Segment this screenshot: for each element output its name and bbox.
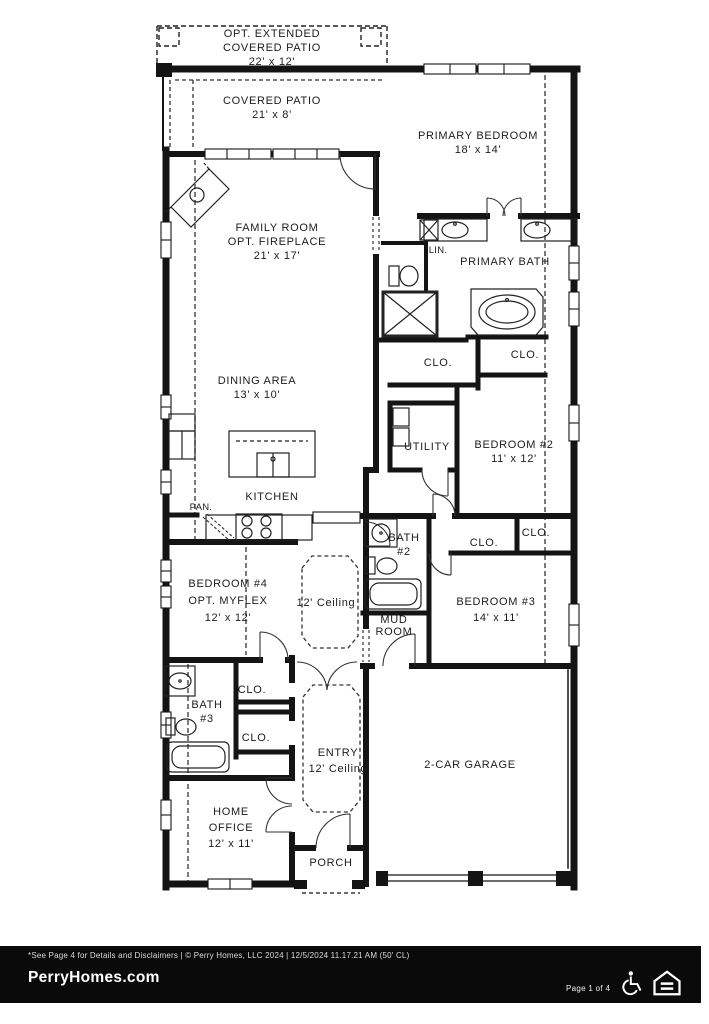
floor-plan-page: OPT. EXTENDED COVERED PATIO 22' x 12' CO… (0, 0, 709, 1024)
wheelchair-accessible-icon (620, 970, 646, 1001)
room-name: OFFICE (208, 820, 254, 836)
primary-double-door (487, 198, 521, 216)
room-dims: 11' x 12' (474, 452, 553, 466)
label-bedroom3: BEDROOM #3 14' x 11' (456, 594, 535, 626)
label-home-office: HOME OFFICE 12' x 11' (208, 804, 254, 852)
label-covered-patio: COVERED PATIO 21' x 8' (223, 94, 321, 122)
window (161, 586, 171, 608)
room-name: COVERED PATIO (223, 41, 321, 55)
room-name: #2 (388, 545, 419, 559)
room-name: #3 (191, 712, 222, 726)
room-name: CLO. (522, 526, 550, 540)
room-name: PRIMARY BATH (460, 255, 550, 269)
brand-logo-text[interactable]: PerryHomes.com (28, 969, 160, 987)
room-dims: 22' x 12' (223, 55, 321, 69)
label-primary-bedroom: PRIMARY BEDROOM 18' x 14' (418, 129, 538, 157)
label-kitchen: KITCHEN (245, 490, 298, 504)
porch-posts (294, 880, 365, 893)
shower (383, 292, 437, 336)
room-dims: 21' x 8' (223, 108, 321, 122)
vanity-sink (424, 219, 487, 241)
label-closet-hall-lower: CLO. (242, 731, 270, 745)
label-dining-area: DINING AREA 13' x 10' (218, 374, 297, 402)
label-hall-ceiling: 12' Ceiling (297, 596, 356, 610)
stove (236, 514, 282, 540)
room-name: BEDROOM #2 (474, 438, 553, 452)
window (273, 149, 339, 159)
label-pantry: PAN. (190, 501, 213, 515)
vanity-sink (521, 219, 577, 241)
room-name: BATH (388, 531, 419, 545)
room-name: ROOM (375, 626, 412, 638)
label-bath3: BATH #3 (191, 698, 222, 726)
utility-door (422, 470, 448, 496)
disclaimer-text: *See Page 4 for Details and Disclaimers … (28, 951, 409, 960)
floor-plan-drawing (0, 0, 709, 1024)
room-name: BEDROOM #4 (188, 576, 267, 593)
entry-hall-doors (297, 662, 357, 690)
window (161, 560, 171, 582)
room-name: CLO. (511, 348, 539, 362)
room-name: ENTRY (309, 745, 368, 761)
room-name: 12' Ceiling (297, 596, 356, 610)
room-dims: 12' x 12' (188, 610, 267, 627)
window (205, 149, 271, 159)
room-dims: 12' Ceiling (309, 761, 368, 777)
room-name: PAN. (190, 501, 213, 515)
room-name: CLO. (424, 356, 452, 370)
label-opt-extended-patio: OPT. EXTENDED COVERED PATIO 22' x 12' (223, 27, 321, 69)
bedroom2-door (433, 494, 455, 516)
room-name: UTILITY (404, 440, 450, 454)
label-garage: 2-CAR GARAGE (424, 758, 516, 772)
window (569, 246, 579, 280)
mud-room-door (383, 634, 415, 666)
label-mud-room: MUD ROOM (375, 614, 412, 638)
room-dims: 21' x 17' (228, 249, 326, 263)
room-name: BEDROOM #3 (456, 594, 535, 610)
garage-door-wall (376, 871, 571, 886)
label-primary-bath: PRIMARY BATH (460, 255, 550, 269)
soaking-tub (471, 289, 543, 335)
room-dims: 13' x 10' (218, 388, 297, 402)
window (569, 292, 579, 326)
window (161, 800, 171, 830)
kitchen-island (229, 431, 315, 477)
label-closet-primary-right: CLO. (511, 348, 539, 362)
window (208, 879, 252, 889)
label-bedroom2: BEDROOM #2 11' x 12' (474, 438, 553, 466)
toilet (366, 557, 397, 574)
label-bedroom4: BEDROOM #4 OPT. MYFLEX 12' x 12' (188, 576, 267, 627)
toilet (389, 266, 418, 286)
room-name: LIN. (429, 244, 448, 258)
footer-bar: *See Page 4 for Details and Disclaimers … (0, 946, 701, 1003)
fireplace (166, 163, 229, 227)
label-bath2: BATH #2 (388, 531, 419, 559)
page-number: Page 1 of 4 (566, 984, 610, 993)
label-closet-hall-upper: CLO. (238, 683, 266, 697)
room-name: HOME (208, 804, 254, 820)
room-name: DINING AREA (218, 374, 297, 388)
window (478, 64, 530, 74)
label-entry: ENTRY 12' Ceiling (309, 745, 368, 777)
room-name: 2-CAR GARAGE (424, 758, 516, 772)
window (161, 470, 171, 494)
label-linen: LIN. (429, 244, 448, 258)
equal-housing-icon (652, 969, 682, 1002)
patio-door (340, 154, 375, 190)
label-family-room: FAMILY ROOM OPT. FIREPLACE 21' x 17' (228, 221, 326, 263)
office-double-door (266, 778, 292, 832)
linen-cabinet (420, 220, 438, 240)
window (569, 604, 579, 646)
tub (365, 579, 421, 609)
room-name: MUD (375, 614, 412, 626)
window (161, 222, 171, 258)
bedroom3-door (429, 553, 451, 575)
room-name: OPT. MYFLEX (188, 593, 267, 610)
room-dims: 14' x 11' (456, 610, 535, 626)
window (424, 64, 476, 74)
room-dims: 12' x 11' (208, 836, 254, 852)
room-name: CLO. (242, 731, 270, 745)
room-name: PRIMARY BEDROOM (418, 129, 538, 143)
room-name: CLO. (238, 683, 266, 697)
bedroom4-door (260, 632, 288, 660)
label-utility: UTILITY (404, 440, 450, 454)
room-name: FAMILY ROOM (228, 221, 326, 235)
pantry-door (203, 514, 234, 541)
windows (161, 64, 579, 889)
window (569, 405, 579, 441)
label-closet-primary-left: CLO. (424, 356, 452, 370)
room-name: OPT. FIREPLACE (228, 235, 326, 249)
refrigerator (169, 414, 195, 459)
room-name: KITCHEN (245, 490, 298, 504)
room-dims: 18' x 14' (418, 143, 538, 157)
label-closet-b3-right: CLO. (522, 526, 550, 540)
room-name: PORCH (309, 856, 352, 870)
label-closet-b3-left: CLO. (470, 536, 498, 550)
tub (167, 742, 229, 772)
front-door (316, 814, 350, 848)
room-name: BATH (191, 698, 222, 712)
room-name: CLO. (470, 536, 498, 550)
label-porch: PORCH (309, 856, 352, 870)
room-name: OPT. EXTENDED (223, 27, 321, 41)
room-name: COVERED PATIO (223, 94, 321, 108)
